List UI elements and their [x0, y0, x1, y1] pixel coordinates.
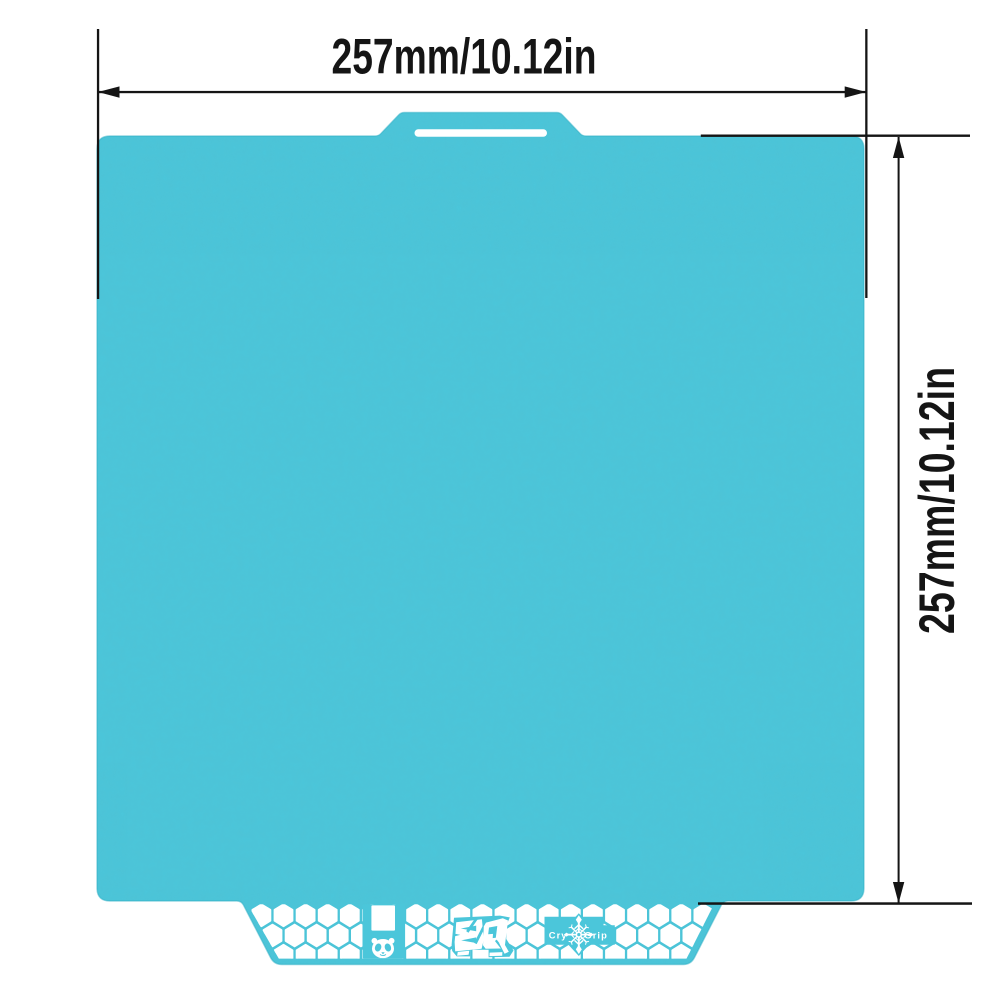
svg-text:257mm/10.12in: 257mm/10.12in [909, 367, 965, 634]
svg-text:Cry: Cry [549, 930, 568, 941]
svg-text:Grip: Grip [584, 930, 608, 941]
svg-text:257mm/10.12in: 257mm/10.12in [332, 29, 597, 85]
